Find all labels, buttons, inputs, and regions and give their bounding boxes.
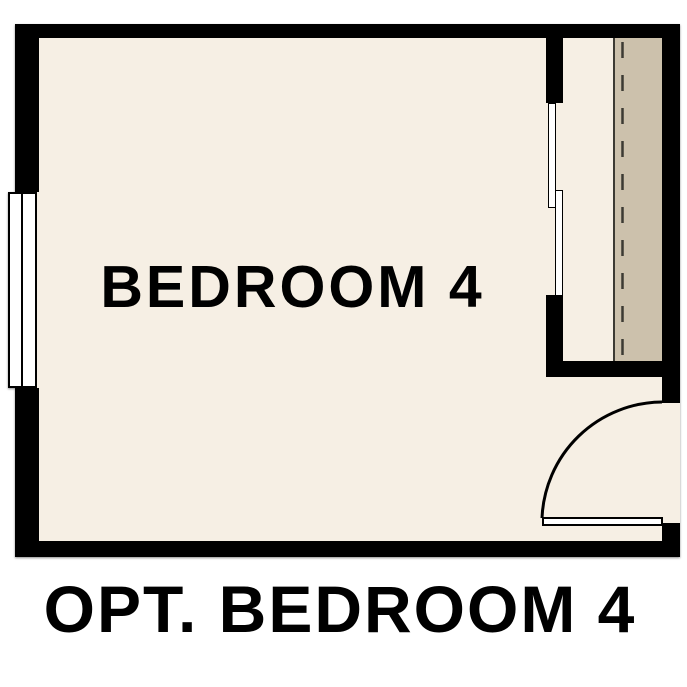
plan-caption: OPT. BEDROOM 4 — [0, 576, 680, 642]
room-label: BEDROOM 4 — [39, 258, 546, 317]
floor-plan: BEDROOM 4 OPT. BEDROOM 4 — [0, 0, 687, 687]
door-leaf-icon — [542, 517, 663, 526]
window-symbol-icon — [8, 192, 37, 388]
door-swing-arc-icon — [542, 402, 662, 518]
window-divider — [21, 194, 23, 386]
closet-sliding-door-panel-right-icon — [555, 190, 563, 296]
